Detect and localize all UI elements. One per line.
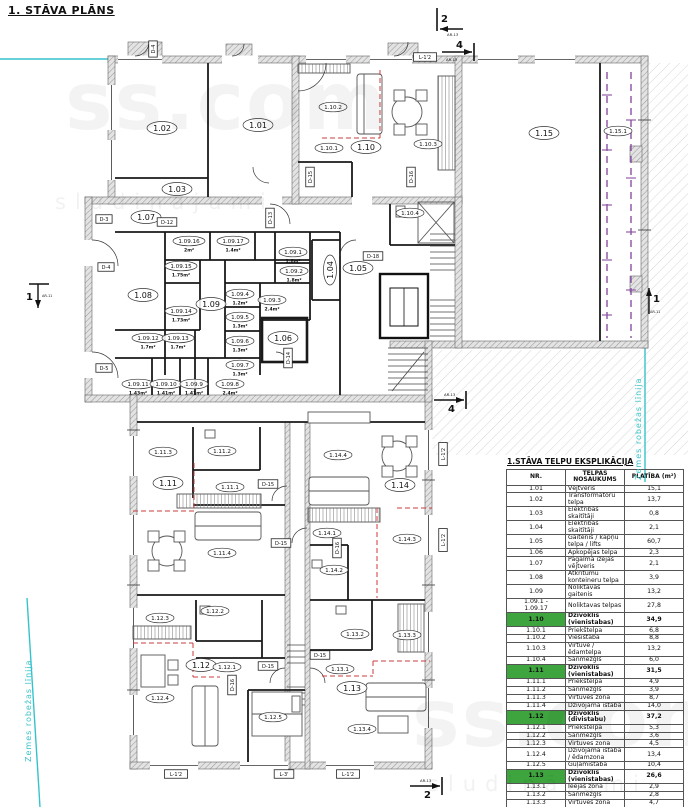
table-row: 1.08Atkritumu konteineru telpa3,9: [507, 571, 684, 585]
svg-text:D-15: D-15: [275, 541, 287, 547]
svg-text:1.09.8: 1.09.8: [221, 382, 239, 388]
table-cell-nr: 1.10.3: [507, 643, 566, 657]
svg-text:1.05: 1.05: [349, 264, 367, 273]
room-label: 1.11.2: [208, 446, 236, 456]
svg-text:1.09.13: 1.09.13: [167, 336, 189, 342]
svg-text:1.14.3: 1.14.3: [398, 537, 416, 543]
room-label: 1.12.3: [146, 613, 174, 623]
table-row: 1.10.4Sanmezgls6,0: [507, 657, 684, 665]
svg-text:1.10: 1.10: [357, 143, 375, 152]
svg-text:1.10.3: 1.10.3: [419, 142, 437, 148]
room-label: 1.07: [131, 211, 161, 224]
svg-text:1.11.1: 1.11.1: [221, 485, 239, 491]
svg-text:4: 4: [448, 404, 455, 415]
svg-text:L-1'2: L-1'2: [441, 534, 447, 546]
svg-text:1.13.2: 1.13.2: [346, 632, 364, 638]
door-window-tag: D-15: [306, 167, 315, 187]
table-cell-area: 2,1: [625, 521, 684, 535]
svg-text:1.01: 1.01: [249, 121, 267, 130]
svg-text:D-5: D-5: [100, 366, 109, 372]
table-cell-nr: 1.07: [507, 557, 566, 571]
door-window-tag: L-3': [274, 770, 294, 779]
table-row: 1.10.2Viesistaba8,8: [507, 635, 684, 643]
table-cell-area: 2,9: [625, 784, 684, 792]
room-label: 1.13.3: [393, 630, 421, 640]
table-row: 1.12Dzīvoklis (divistabu)37,2: [507, 710, 684, 724]
svg-text:AR-11: AR-11: [42, 294, 52, 298]
table-cell-nr: 1.10.4: [507, 657, 566, 665]
door-window-tag: D-12: [157, 218, 177, 227]
table-cell-nr: 1.10: [507, 613, 566, 627]
table-row: 1.11.1Priekštelpa4,9: [507, 679, 684, 687]
entrance-stoops: [128, 42, 418, 57]
table-cell-nr: 1.12.5: [507, 762, 566, 770]
table-cell-name: Noliktavas telpas: [566, 599, 625, 613]
table-cell-name: Sanmezgls: [566, 732, 625, 740]
door-window-tag: D-4: [98, 263, 114, 272]
svg-text:L-1'2: L-1'2: [441, 448, 447, 460]
svg-text:1.12.2: 1.12.2: [206, 609, 224, 615]
table-row: 1.13.3Virtuves zona4,7: [507, 799, 684, 807]
svg-text:1.43m²: 1.43m²: [129, 390, 147, 396]
section-marker: 2AR-13: [437, 8, 463, 37]
table-row: 1.04Elektrības skaitītāji2,1: [507, 521, 684, 535]
table-cell-name: Pagalma izejas vējtveris: [566, 557, 625, 571]
table-cell-nr: 1.13.2: [507, 792, 566, 800]
table-cell-nr: 1.03: [507, 507, 566, 521]
svg-text:D-4: D-4: [151, 45, 157, 54]
table-cell-name: Transformatoru telpa: [566, 493, 625, 507]
table-row: 1.02Transformatoru telpa13,7: [507, 493, 684, 507]
svg-text:D-15: D-15: [262, 664, 274, 670]
svg-text:L-1'2: L-1'2: [419, 55, 431, 61]
table-row: 1.10Dzīvoklis (vienistabas)34,9: [507, 613, 684, 627]
svg-text:1.11.4: 1.11.4: [213, 551, 231, 557]
room-label: 1.09.82.4m²: [216, 379, 244, 396]
table-row: 1.09.1 - 1.09.17Noliktavas telpas27,8: [507, 599, 684, 613]
room-label: 1.09.71.3m²: [226, 360, 254, 377]
table-row: 1.12.3Virtuves zona4,5: [507, 740, 684, 748]
room-label: 1.09.131.7m²: [162, 333, 194, 350]
room-label: 1.03: [162, 183, 192, 196]
svg-text:1.7m²: 1.7m²: [141, 344, 156, 350]
svg-text:1.14.1: 1.14.1: [318, 531, 336, 537]
table-cell-name: Atkritumu konteineru telpa: [566, 571, 625, 585]
table-cell-name: Elektrības skaitītāji: [566, 521, 625, 535]
room-label: 1.14.2: [320, 565, 348, 575]
svg-text:1.4m²: 1.4m²: [226, 247, 241, 253]
svg-text:1.15.1: 1.15.1: [609, 129, 627, 135]
room-label: 1.09.21.8m²: [280, 266, 308, 283]
table-cell-name: Ieejas zona: [566, 784, 625, 792]
room-label: 1.13.2: [341, 629, 369, 639]
table-row: 1.03Elektrības skaitītāji0,8: [507, 507, 684, 521]
table-cell-name: Gaitenis / kāpņu telpa / lifts: [566, 535, 625, 549]
svg-text:1.10.2: 1.10.2: [324, 105, 342, 111]
table-row: 1.07Pagalma izejas vējtveris2,1: [507, 557, 684, 571]
svg-text:1.09.10: 1.09.10: [155, 382, 177, 388]
table-cell-name: Dzīvojamā istaba / ēdamzona: [566, 748, 625, 762]
table-cell-area: 4,5: [625, 740, 684, 748]
zone-dashed-lines: [133, 70, 432, 677]
svg-text:1.09.4: 1.09.4: [231, 292, 249, 298]
table-cell-area: 3,9: [625, 571, 684, 585]
svg-text:1.02: 1.02: [153, 124, 171, 133]
door-window-tag: L-1'2: [337, 770, 360, 779]
svg-text:L-1'2: L-1'2: [342, 772, 354, 778]
room-label: 1.14.1: [313, 528, 341, 538]
table-row: 1.09Noliktavas gaitenis13,2: [507, 585, 684, 599]
table-cell-name: Noliktavas gaitenis: [566, 585, 625, 599]
svg-text:D-13: D-13: [268, 212, 274, 224]
svg-text:D-14: D-14: [286, 352, 292, 364]
room-label: 1.09.101.41m²: [150, 379, 182, 396]
table-cell-area: 13,4: [625, 748, 684, 762]
room-label: 1.13: [337, 682, 367, 695]
railing-dashed-lines: [602, 72, 636, 338]
table-cell-nr: 1.09: [507, 585, 566, 599]
svg-text:1.09.15: 1.09.15: [170, 264, 192, 270]
svg-text:D-18: D-18: [367, 254, 379, 260]
table-cell-name: Virtuves zona: [566, 740, 625, 748]
door-window-tag: D-16: [228, 675, 237, 695]
door-window-tag: D-15: [310, 651, 330, 660]
room-label: 1.12: [186, 659, 216, 672]
table-row: 1.10.1Priekštelpa6,8: [507, 627, 684, 635]
room-label: 1.04: [324, 255, 337, 285]
svg-text:1.14.2: 1.14.2: [325, 568, 343, 574]
svg-text:1.09.11: 1.09.11: [127, 382, 149, 388]
door-window-tag: D-14: [284, 348, 293, 368]
svg-text:1.12: 1.12: [192, 661, 210, 670]
svg-text:1.09.16: 1.09.16: [178, 239, 200, 245]
table-row: 1.13.2Sanmezgls2,8: [507, 792, 684, 800]
room-label: 1.11.4: [208, 548, 236, 558]
table-cell-area: 2,1: [625, 557, 684, 571]
room-label: 1.09.171.4m²: [217, 236, 249, 253]
table-cell-nr: 1.12.3: [507, 740, 566, 748]
door-window-tag: L-1'2: [165, 770, 188, 779]
room-label: 1.13.4: [348, 724, 376, 734]
table-cell-name: Virtuves zona: [566, 799, 625, 807]
svg-text:1.3m²: 1.3m²: [233, 371, 248, 377]
table-cell-area: 2,8: [625, 792, 684, 800]
table-cell-area: 3,9: [625, 686, 684, 694]
door-window-tag: D-15: [258, 662, 278, 671]
table-cell-area: 8,7: [625, 694, 684, 702]
table-cell-area: 27,8: [625, 599, 684, 613]
table-cell-nr: 1.12.2: [507, 732, 566, 740]
table-header-row: NR. TELPAS NOSAUKUMS PLATĪBA (m²): [507, 470, 684, 486]
table-row: 1.12.2Sanmezgls3,6: [507, 732, 684, 740]
door-window-tag: D-16: [333, 538, 342, 558]
room-label: 1.09.41.2m²: [226, 289, 254, 306]
table-cell-area: 5,3: [625, 724, 684, 732]
table-cell-name: Guļamistaba: [566, 762, 625, 770]
svg-text:D-3: D-3: [100, 217, 109, 223]
svg-text:D-4: D-4: [102, 265, 111, 271]
table-cell-name: Dzīvoklis (vienistabas): [566, 770, 625, 784]
svg-text:1: 1: [26, 292, 33, 303]
svg-text:1.07: 1.07: [137, 213, 155, 222]
room-label: 1.09.32.4m²: [258, 295, 286, 312]
svg-text:1.09.5: 1.09.5: [231, 315, 249, 321]
section-marker: 2AR-13: [410, 777, 442, 801]
table-cell-area: 4,9: [625, 679, 684, 687]
room-label: 1.10: [351, 141, 381, 154]
svg-text:1.09.12: 1.09.12: [137, 336, 158, 342]
svg-text:1.12.1: 1.12.1: [218, 665, 236, 671]
table-cell-name: Elektrības skaitītāji: [566, 507, 625, 521]
table-cell-area: 3,6: [625, 732, 684, 740]
room-label: 1.11.1: [216, 482, 244, 492]
table-row: 1.05Gaitenis / kāpņu telpa / lifts60,7: [507, 535, 684, 549]
svg-text:1.13: 1.13: [343, 684, 361, 693]
table-row: 1.11.2Sanmezgls3,9: [507, 686, 684, 694]
room-label: 1.12.2: [201, 606, 229, 616]
table-title: 1.STĀVA TELPU EKSPLIKĀCIJA: [507, 457, 684, 466]
room-explication-table: 1.STĀVA TELPU EKSPLIKĀCIJA NR. TELPAS NO…: [506, 457, 684, 807]
svg-text:1.09.17: 1.09.17: [222, 239, 244, 245]
table-cell-area: 34,9: [625, 613, 684, 627]
table-cell-area: 60,7: [625, 535, 684, 549]
svg-text:L-3': L-3': [279, 772, 288, 778]
section-marker: 1AR-11: [26, 284, 52, 308]
ground-hatch: [432, 63, 688, 455]
table-cell-nr: 1.04: [507, 521, 566, 535]
room-label: 1.09.151.75m²: [165, 261, 197, 278]
floor-plan-page: 1.011.021.031.041.051.061.071.081.091.10…: [0, 0, 688, 807]
room-label: 1.09.162m²: [173, 236, 205, 253]
table-cell-area: 37,2: [625, 710, 684, 724]
table-cell-area: 13,2: [625, 585, 684, 599]
table-cell-name: Apkopējas telpa: [566, 549, 625, 557]
svg-text:AR-13: AR-13: [444, 392, 456, 397]
table-cell-area: 14,0: [625, 702, 684, 710]
door-window-tag: D-4: [149, 41, 158, 57]
svg-text:2: 2: [441, 14, 448, 25]
table-row: 1.10.3Virtuve / ēdamtelpa13,2: [507, 643, 684, 657]
room-label: 1.11: [153, 477, 183, 490]
svg-text:1.12.4: 1.12.4: [151, 696, 169, 702]
table-cell-area: 13,7: [625, 493, 684, 507]
table-cell-name: Dzīvoklis (divistabu): [566, 710, 625, 724]
svg-text:D-15: D-15: [262, 482, 274, 488]
svg-text:D-15: D-15: [308, 171, 314, 183]
table-cell-name: Sanmezgls: [566, 657, 625, 665]
table-cell-name: Dzīvoklis (vienistabas): [566, 665, 625, 679]
svg-text:1.12.3: 1.12.3: [151, 616, 169, 622]
room-label: 1.14: [385, 479, 415, 492]
table-cell-area: 2,3: [625, 549, 684, 557]
room-label: 1.11.3: [149, 447, 177, 457]
room-label: 1.09.11.8m²: [279, 247, 307, 264]
table-cell-nr: 1.11.4: [507, 702, 566, 710]
table-cell-name: Priekštelpa: [566, 679, 625, 687]
room-label: 1.10.4: [396, 208, 424, 218]
column-header-nr: NR.: [507, 470, 566, 486]
room-label: 1.12.5: [259, 712, 287, 722]
svg-text:1.41m²: 1.41m²: [157, 390, 175, 396]
door-window-tag: L-1'2: [439, 529, 448, 552]
svg-text:1.11.3: 1.11.3: [154, 450, 172, 456]
room-label: 1.10.2: [319, 102, 347, 112]
svg-text:1.2m²: 1.2m²: [233, 300, 248, 306]
column-header-name: TELPAS NOSAUKUMS: [566, 470, 625, 486]
room-label: 1.09.121.7m²: [132, 333, 164, 350]
door-window-tag: D-16: [407, 167, 416, 187]
table-cell-name: Virtuves zona: [566, 694, 625, 702]
table-cell-nr: 1.13: [507, 770, 566, 784]
svg-text:D-16: D-16: [230, 679, 236, 691]
svg-text:D-12: D-12: [161, 220, 173, 226]
svg-text:1.08: 1.08: [134, 291, 152, 300]
svg-text:1.13.4: 1.13.4: [353, 727, 371, 733]
svg-text:1.03: 1.03: [168, 185, 186, 194]
room-label: 1.10.3: [414, 139, 442, 149]
svg-text:1.14: 1.14: [391, 481, 409, 490]
svg-text:1.13.1: 1.13.1: [331, 667, 349, 673]
table-cell-nr: 1.10.1: [507, 627, 566, 635]
svg-text:1.8m²: 1.8m²: [286, 258, 301, 264]
table-cell-area: 4,7: [625, 799, 684, 807]
svg-text:4: 4: [456, 40, 463, 51]
svg-text:1.10.4: 1.10.4: [401, 211, 419, 217]
svg-text:2m²: 2m²: [184, 247, 194, 253]
svg-text:1.06: 1.06: [274, 334, 292, 343]
room-label: 1.14.3: [393, 534, 421, 544]
table-cell-nr: 1.01: [507, 485, 566, 493]
room-label: 1.08: [128, 289, 158, 302]
table-cell-name: Viesistaba: [566, 635, 625, 643]
room-label: 1.09.111.43m²: [122, 379, 154, 396]
table-cell-nr: 1.12.4: [507, 748, 566, 762]
table-row: 1.11.3Virtuves zona8,7: [507, 694, 684, 702]
table-cell-nr: 1.02: [507, 493, 566, 507]
table-row: 1.11.4Dzīvojamā istaba14,0: [507, 702, 684, 710]
svg-text:1.3m²: 1.3m²: [233, 347, 248, 353]
svg-text:1.15: 1.15: [535, 129, 553, 138]
table-cell-nr: 1.12.1: [507, 724, 566, 732]
svg-text:D-15: D-15: [314, 653, 326, 659]
svg-text:1.12.5: 1.12.5: [264, 715, 282, 721]
room-label: 1.14.4: [324, 450, 352, 460]
table-cell-area: 8,8: [625, 635, 684, 643]
svg-text:AR-13: AR-13: [446, 57, 458, 62]
table-cell-name: Sanmezgls: [566, 792, 625, 800]
table-cell-nr: 1.10.2: [507, 635, 566, 643]
svg-text:1.3m²: 1.3m²: [233, 323, 248, 329]
svg-text:1.13.3: 1.13.3: [398, 633, 416, 639]
table-cell-nr: 1.13.3: [507, 799, 566, 807]
table-cell-area: 13,2: [625, 643, 684, 657]
door-window-tag: L-1'2: [439, 443, 448, 466]
svg-text:1.09.3: 1.09.3: [263, 298, 281, 304]
room-label: 1.09.91.41m²: [180, 379, 208, 396]
svg-text:AR-13: AR-13: [420, 778, 432, 783]
table-row: 1.12.5Guļamistaba10,4: [507, 762, 684, 770]
table-row: 1.01Vējtveris15,1: [507, 485, 684, 493]
room-label: 1.09.51.3m²: [226, 312, 254, 329]
boundary-label-right: Zemes robežas līnija: [634, 377, 643, 480]
svg-text:1.14.4: 1.14.4: [329, 453, 347, 459]
svg-text:2.4m²: 2.4m²: [265, 306, 280, 312]
table-cell-name: Priekštelpa: [566, 724, 625, 732]
table-cell-nr: 1.12: [507, 710, 566, 724]
room-label: 1.12.1: [213, 662, 241, 672]
door-window-tag: D-15: [271, 539, 291, 548]
table-row: 1.13Dzīvoklis (vienistabas)26,6: [507, 770, 684, 784]
table-cell-area: 10,4: [625, 762, 684, 770]
table-cell-nr: 1.09.1 - 1.09.17: [507, 599, 566, 613]
svg-text:AR-13: AR-13: [447, 32, 459, 37]
table-row: 1.12.1Priekštelpa5,3: [507, 724, 684, 732]
table-cell-nr: 1.11.1: [507, 679, 566, 687]
room-label: 1.02: [147, 122, 177, 135]
boundary-label-left: Zemes robežas līnija: [24, 659, 33, 762]
door-window-tag: D-13: [266, 208, 275, 228]
table-cell-nr: 1.13.1: [507, 784, 566, 792]
svg-text:1.11: 1.11: [159, 479, 177, 488]
room-label: 1.13.1: [326, 664, 354, 674]
table-cell-name: Vējtveris: [566, 485, 625, 493]
table-cell-name: Sanmezgls: [566, 686, 625, 694]
svg-text:1.09.14: 1.09.14: [170, 309, 192, 315]
room-label: 1.01: [243, 119, 273, 132]
table-cell-nr: 1.11: [507, 665, 566, 679]
table-cell-area: 15,1: [625, 485, 684, 493]
table-cell-nr: 1.08: [507, 571, 566, 585]
svg-text:D-16: D-16: [409, 171, 415, 183]
room-label: 1.09: [196, 298, 226, 311]
table-cell-nr: 1.06: [507, 549, 566, 557]
room-label: 1.15: [529, 127, 559, 140]
table-cell-area: 0,8: [625, 507, 684, 521]
table-row: 1.12.4Dzīvojamā istaba / ēdamzona13,4: [507, 748, 684, 762]
svg-text:1.09.9: 1.09.9: [185, 382, 203, 388]
svg-text:1.41m²: 1.41m²: [185, 390, 203, 396]
door-window-tag: D-3: [96, 215, 112, 224]
svg-text:2: 2: [424, 790, 431, 801]
svg-text:1.09.6: 1.09.6: [231, 339, 249, 345]
door-window-tag: D-15: [258, 480, 278, 489]
svg-text:1: 1: [653, 294, 660, 305]
svg-text:1.04: 1.04: [326, 261, 335, 279]
table-cell-name: Dzīvoklis (vienistabas): [566, 613, 625, 627]
table-cell-area: 6,8: [625, 627, 684, 635]
room-label: 1.05: [343, 262, 373, 275]
room-label: 1.06: [268, 332, 298, 345]
svg-text:1.10.1: 1.10.1: [320, 146, 338, 152]
table-cell-name: Dzīvojamā istaba: [566, 702, 625, 710]
svg-text:1.09: 1.09: [202, 300, 220, 309]
svg-text:1.75m²: 1.75m²: [172, 272, 190, 278]
svg-text:1.09.1: 1.09.1: [284, 250, 302, 256]
room-label: 1.09.61.3m²: [226, 336, 254, 353]
door-window-tag: D-18: [363, 252, 383, 261]
table-cell-nr: 1.11.2: [507, 686, 566, 694]
table-cell-area: 26,6: [625, 770, 684, 784]
lift: [380, 274, 428, 338]
room-label: 1.12.4: [146, 693, 174, 703]
svg-text:1.7m²: 1.7m²: [171, 344, 186, 350]
page-title: 1. STĀVA PLĀNS: [8, 4, 115, 17]
door-window-tag: L-1'2: [414, 53, 437, 62]
table-cell-area: 6,0: [625, 657, 684, 665]
svg-text:D-16: D-16: [335, 542, 341, 554]
table-cell-nr: 1.11.3: [507, 694, 566, 702]
svg-text:2.4m²: 2.4m²: [223, 390, 238, 396]
